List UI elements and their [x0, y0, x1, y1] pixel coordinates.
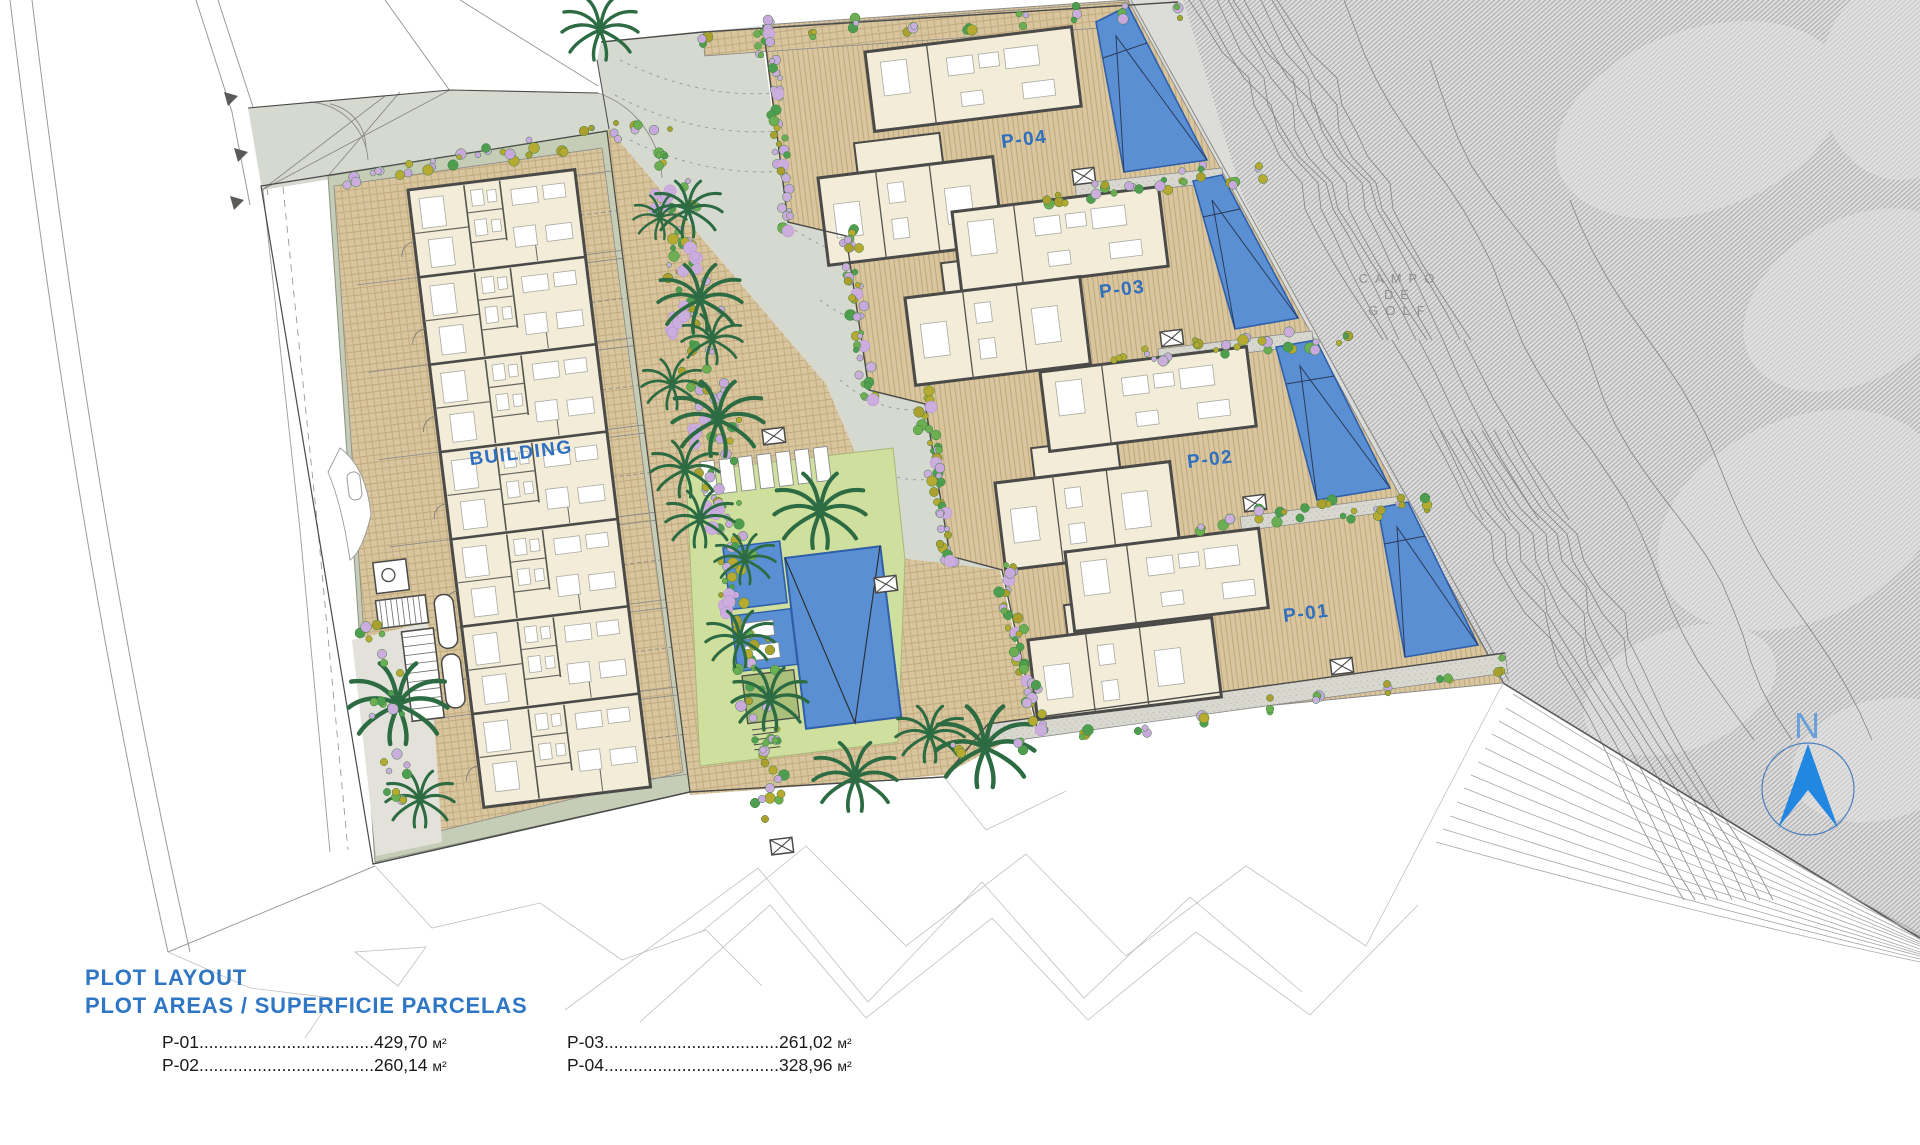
svg-text:N: N: [1794, 705, 1820, 746]
svg-text:P-04..........................: P-04....................................…: [567, 1055, 852, 1075]
svg-text:DE: DE: [1384, 287, 1416, 302]
svg-text:P-01..........................: P-01....................................…: [162, 1032, 447, 1052]
svg-text:P-02..........................: P-02....................................…: [162, 1055, 447, 1075]
svg-text:CAMPO: CAMPO: [1359, 271, 1442, 286]
svg-text:GOLF: GOLF: [1368, 303, 1431, 318]
svg-text:P-03..........................: P-03....................................…: [567, 1032, 852, 1052]
svg-text:PLOT LAYOUT: PLOT LAYOUT: [85, 965, 247, 990]
svg-text:PLOT AREAS / SUPERFICIE PARCEL: PLOT AREAS / SUPERFICIE PARCELAS: [85, 993, 527, 1018]
